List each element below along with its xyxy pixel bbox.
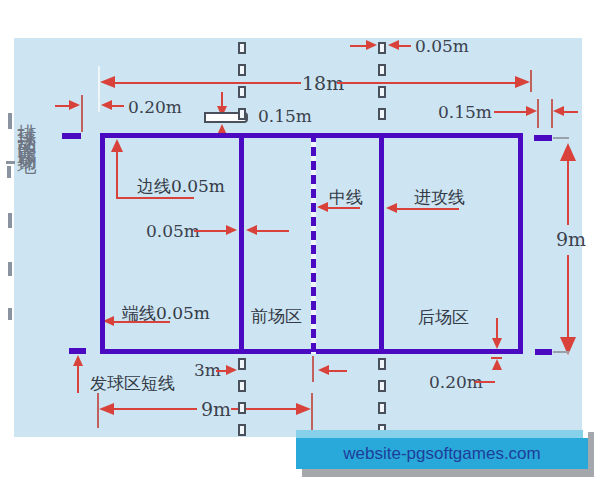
arrow-right-icon [296,403,311,415]
attack-line-extension-top-right [378,42,386,120]
dimension-line [112,105,124,107]
arrow-right-icon [515,76,530,88]
label-center-line: 中线 [329,186,363,209]
dimension-dash-width: 0.05m [415,36,469,56]
dimension-9m-width: 9m [556,228,586,250]
dimension-tick [312,356,314,382]
dimension-line [350,45,366,47]
arrow-left-icon [386,203,397,213]
arrow-left-icon [101,100,112,110]
dimension-tick [537,99,539,128]
arrow-left-icon [553,106,564,116]
dimension-line [113,408,197,410]
leader-line [328,207,360,209]
extension-line [553,351,569,353]
left-margin-clipped-text [8,262,12,276]
arrow-up-icon [492,359,502,370]
dimension-line [329,370,347,372]
dimension-tick [530,70,532,92]
dimension-line [475,381,495,383]
dimension-line [221,92,223,106]
volleyball-court-diagram: 排球运动的比赛场地 18m 0.05m 0.20m 0.15m 0.15m 9m… [0,0,600,480]
label-front-zone: 前场区 [251,305,302,328]
arrow-right-icon [69,100,80,110]
dimension-tick [81,95,83,132]
label-attack-line: 进攻线 [414,186,465,209]
arrow-right-icon [526,106,537,116]
attack-line-extension-bottom-left [238,358,246,436]
banner-shadow [302,469,592,477]
leader-line [397,208,459,210]
dimension-short-line-setback: 0.20m [128,97,182,117]
dimension-tick [98,66,100,112]
left-margin-clipped-text [8,308,12,320]
dimension-9m-half: 9m [201,398,231,420]
attack-line-right [379,133,384,354]
dimension-line [399,45,411,47]
left-margin-clipped-text [7,166,11,178]
dimension-line [494,111,526,113]
left-margin-clipped-text [6,161,15,164]
dimension-line [114,82,301,84]
dimension-line [216,370,226,372]
leader-line [77,365,79,393]
label-back-zone: 后场区 [418,306,469,329]
service-short-line-bottom-left [69,348,86,354]
dimension-short-line-length: 0.15m [438,102,492,122]
attack-line-extension-top-left [238,42,246,120]
dimension-line [337,82,516,84]
attack-line-extension-bottom-right [378,358,386,436]
diagram-title-vertical: 排球运动的比赛场地 [15,108,41,144]
arrow-right-icon [226,365,237,375]
arrow-left-icon [318,365,329,375]
dimension-line [567,159,569,225]
watermark-banner: website-pgsoftgames.com [296,438,588,469]
arrow-left-icon [99,403,114,415]
arrow-left-icon [100,76,115,88]
dimension-line [564,111,578,113]
attack-line-left [239,133,244,354]
label-service-zone-short-line: 发球区短线 [90,372,175,395]
watermark-text: website-pgsoftgames.com [343,444,540,464]
dimension-tick [311,393,313,430]
left-margin-clipped-text [8,213,12,228]
center-line [311,133,316,354]
arrow-right-icon [366,40,377,50]
service-short-line-bottom-right [535,349,552,355]
arrow-left-icon [317,202,328,212]
extension-line [553,137,569,139]
dimension-dash-length: 0.15m [258,106,312,126]
service-short-line-top-right [534,135,552,141]
dimension-line [55,105,69,107]
service-short-line-top-left [62,133,81,139]
dimension-line [567,255,569,337]
arrow-left-icon [388,40,399,50]
left-margin-clipped-text [8,113,12,129]
